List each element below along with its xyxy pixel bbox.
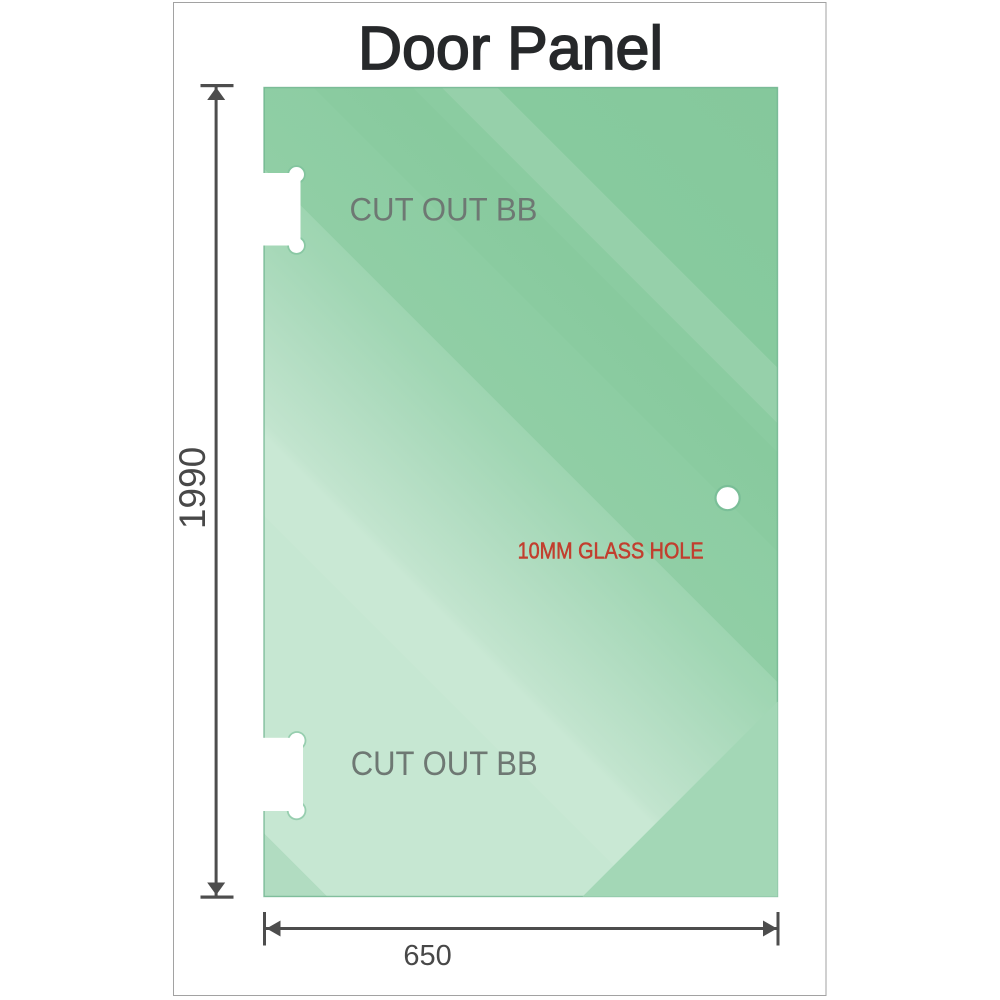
svg-text:650: 650: [403, 940, 451, 972]
svg-text:CUT OUT BB: CUT OUT BB: [350, 191, 538, 227]
svg-text:Door Panel: Door Panel: [358, 14, 663, 82]
svg-text:1990: 1990: [172, 447, 213, 529]
svg-text:10MM GLASS HOLE: 10MM GLASS HOLE: [518, 538, 704, 564]
svg-text:CUT OUT BB: CUT OUT BB: [351, 745, 538, 783]
